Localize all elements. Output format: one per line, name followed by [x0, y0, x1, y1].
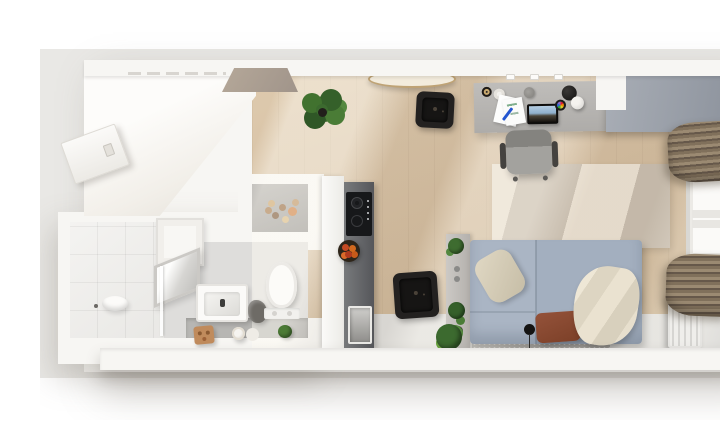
shelf-knobs — [454, 266, 460, 272]
chair-seat — [505, 129, 553, 175]
lamp-stem — [529, 334, 530, 348]
toilet-tank — [264, 308, 300, 319]
extractor-panel — [222, 68, 298, 92]
paper-sheet — [502, 97, 526, 126]
floor-plant — [436, 324, 462, 350]
toilet-lid — [266, 262, 297, 308]
induction-cooktop — [346, 192, 372, 236]
desk-lamp-white-ball — [571, 96, 584, 109]
spice-nook-shelf — [252, 184, 308, 232]
bathroom-plant — [278, 325, 292, 338]
floorplan-render — [40, 16, 720, 420]
shower-area — [70, 222, 164, 338]
shower-bowl — [102, 296, 128, 311]
fruit-bowl — [338, 240, 360, 262]
black-side-stool — [392, 271, 439, 320]
wall-socket — [554, 74, 563, 80]
mattress-seam — [470, 311, 535, 313]
floor-drain — [94, 304, 98, 308]
monitor-screen — [529, 106, 556, 122]
color-wheel — [555, 100, 566, 111]
monitor — [527, 104, 558, 125]
office-chair — [499, 129, 559, 179]
cube-holes — [198, 331, 202, 335]
desk-speaker — [524, 87, 535, 98]
fruits — [342, 244, 349, 251]
rolled-towels — [232, 327, 245, 340]
shelf-plant — [448, 302, 465, 319]
burner-ring — [351, 197, 363, 209]
bottom-wall — [100, 348, 720, 370]
washbasin — [196, 284, 248, 322]
toilet-hinge — [287, 311, 292, 316]
window-mullion — [692, 210, 720, 218]
wall-socket — [506, 74, 515, 80]
faucet — [220, 299, 225, 307]
pen-cup — [482, 87, 492, 97]
toilet-hinge — [272, 311, 277, 316]
throw-blanket — [568, 261, 644, 350]
reading-lamp — [524, 324, 535, 338]
toilet — [264, 262, 300, 320]
burner-ring — [351, 215, 363, 227]
chair-armrest — [552, 141, 559, 167]
kitchen-sink — [348, 306, 372, 344]
plant-pot — [318, 108, 327, 117]
beige-pillow — [471, 245, 530, 307]
curtain-bottom — [665, 253, 720, 317]
wall-socket — [530, 74, 539, 80]
curtain-top — [666, 120, 720, 183]
window — [686, 174, 720, 260]
door-handle-plate — [103, 143, 116, 157]
kitchen-counter — [344, 182, 374, 348]
shelf-plant — [448, 238, 464, 254]
chair-armrest — [500, 143, 507, 169]
double-bed — [470, 240, 642, 344]
spice-jars — [268, 200, 275, 207]
upper-cabinet-handles — [128, 72, 226, 75]
black-dining-stool — [415, 91, 455, 129]
kitchen-tall-unit — [322, 176, 344, 348]
large-potted-plant — [298, 84, 344, 130]
desk — [474, 81, 607, 133]
wooden-cube-stool — [193, 325, 214, 345]
glass-partition — [160, 266, 163, 336]
cooktop-controls — [367, 200, 369, 202]
